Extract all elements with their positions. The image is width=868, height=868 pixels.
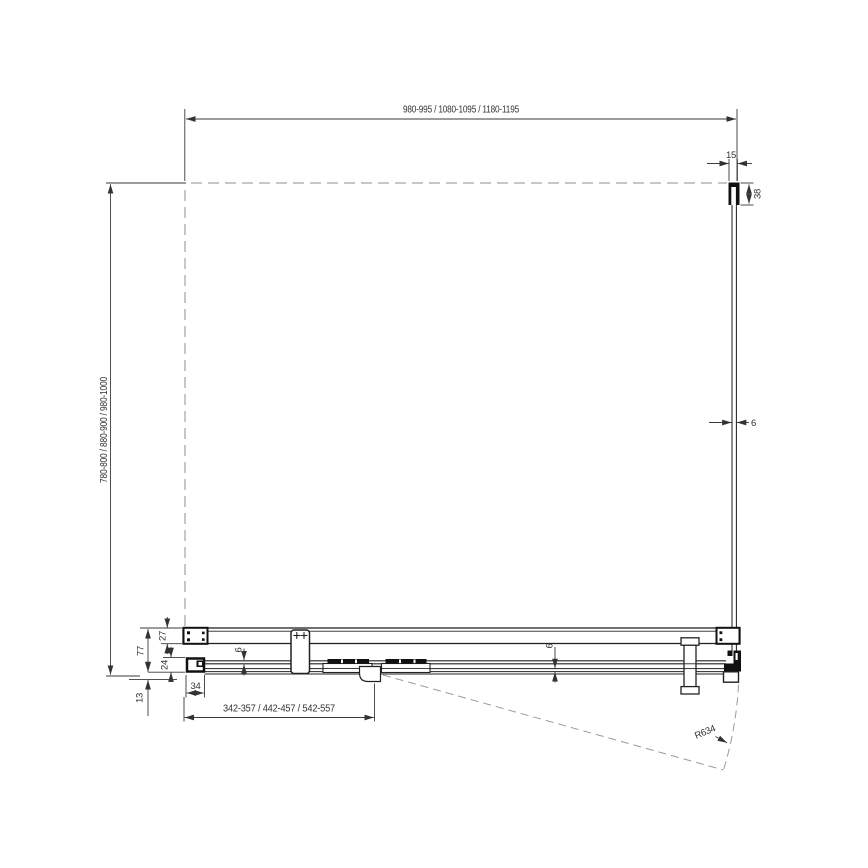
entry-width-label: 342-357 / 442-457 / 542-557 bbox=[223, 704, 336, 715]
grip-tab bbox=[360, 667, 381, 682]
dim-door-glass-6-right: 6 bbox=[545, 643, 556, 682]
dim-wall-profile-15: 15 bbox=[707, 150, 752, 181]
profile-depth-label: 24 bbox=[160, 660, 171, 670]
left-wall-profile bbox=[187, 659, 205, 672]
threshold-label: 13 bbox=[135, 693, 146, 703]
rail-bracket-right bbox=[717, 628, 740, 644]
top-rail bbox=[183, 628, 740, 644]
dim-left-depth: 780-800 / 880-900 / 980-1000 bbox=[99, 183, 186, 676]
side-glass-panel bbox=[732, 205, 736, 653]
dim-assembly-77: 77 bbox=[136, 629, 149, 671]
dim-top-width: 980-995 / 1080-1095 / 1180-1195 bbox=[185, 105, 737, 182]
profile-width-label: 34 bbox=[191, 681, 201, 692]
top-wall-profile bbox=[729, 183, 740, 206]
side-glass-thickness-label: 6 bbox=[751, 418, 756, 429]
swing-radius-label: R634 bbox=[693, 723, 717, 742]
door-glass-lines bbox=[205, 661, 727, 674]
shower-enclosure-plan-drawing: 980-995 / 1080-1095 / 1180-1195 780-800 … bbox=[0, 0, 868, 868]
door-glass-thickness-left-label: 6 bbox=[234, 647, 245, 652]
technical-drawing-page: 980-995 / 1080-1095 / 1180-1195 780-800 … bbox=[0, 0, 868, 868]
rail-depth-label: 27 bbox=[158, 631, 169, 641]
support-post bbox=[681, 638, 699, 694]
dim-entry-width: 342-357 / 442-457 / 542-557 bbox=[184, 684, 375, 722]
wall-profile-width-label: 15 bbox=[726, 150, 736, 161]
handle-right bbox=[382, 659, 431, 673]
wall-profile-depth-label: 38 bbox=[753, 189, 764, 199]
enclosure-dashed-outline bbox=[185, 183, 727, 626]
top-width-label: 980-995 / 1080-1095 / 1180-1195 bbox=[403, 105, 520, 116]
dim-profile-34: 34 bbox=[186, 675, 205, 698]
door-glass-thickness-right-label: 6 bbox=[545, 643, 556, 648]
dim-wall-profile-38: 38 bbox=[741, 183, 764, 205]
left-depth-label: 780-800 / 880-900 / 980-1000 bbox=[99, 376, 110, 483]
dim-profile-24: 24 bbox=[148, 647, 185, 682]
rail-bracket-left bbox=[184, 628, 208, 644]
assembly-depth-label: 77 bbox=[136, 646, 147, 656]
corner-fitting bbox=[724, 651, 742, 683]
roller-carriage bbox=[291, 630, 310, 674]
